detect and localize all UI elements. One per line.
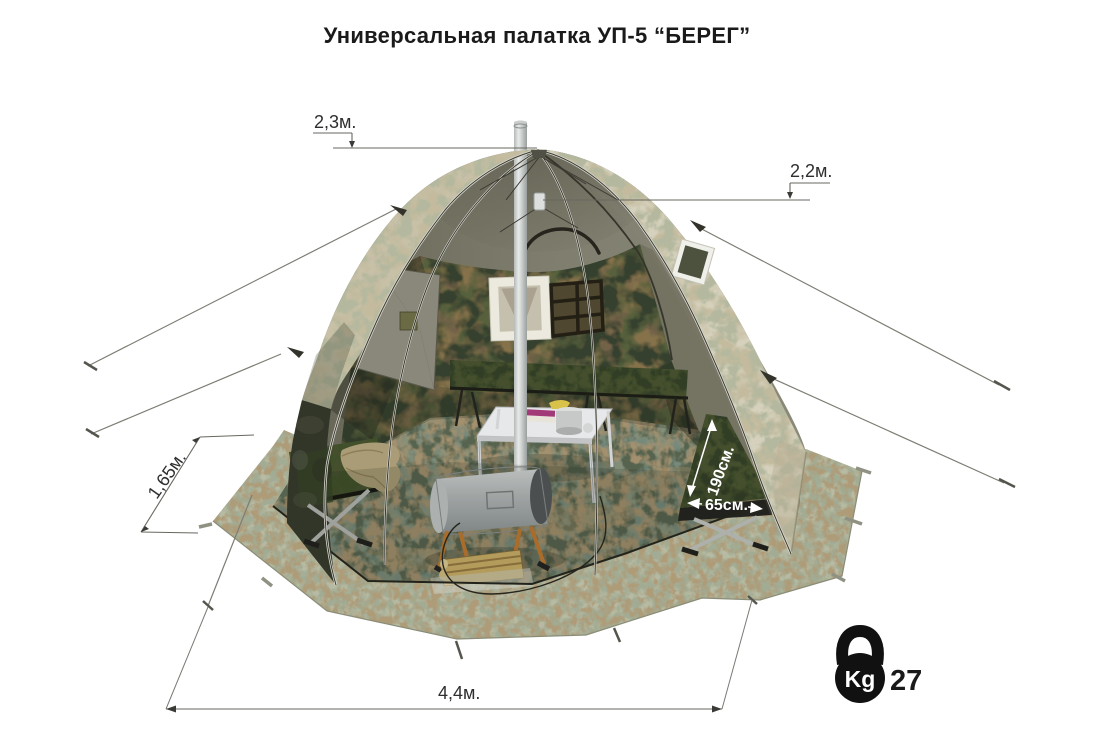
svg-text:Универсальная палатка УП-5 “БЕ: Универсальная палатка УП-5 “БЕРЕГ” — [324, 23, 751, 48]
svg-text:2,3м.: 2,3м. — [314, 112, 356, 132]
svg-text:65см.: 65см. — [705, 497, 748, 514]
svg-text:Kg: Kg — [845, 666, 876, 692]
svg-text:2,2м.: 2,2м. — [790, 161, 832, 181]
svg-text:4,4м.: 4,4м. — [438, 683, 480, 703]
svg-text:27: 27 — [890, 665, 922, 697]
